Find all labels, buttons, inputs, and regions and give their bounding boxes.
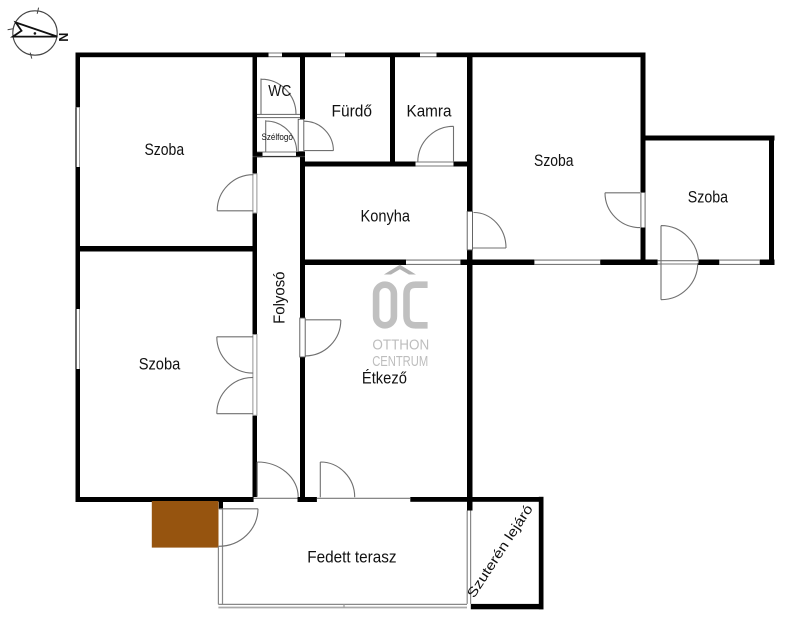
svg-text:Konyha: Konyha xyxy=(361,208,411,226)
svg-text:Szélfogó: Szélfogó xyxy=(261,132,293,143)
svg-text:Folyosó: Folyosó xyxy=(272,271,289,323)
svg-text:Fürdő: Fürdő xyxy=(332,103,373,121)
svg-text:Szoba: Szoba xyxy=(144,141,184,159)
svg-text:Szoba: Szoba xyxy=(534,152,574,170)
svg-text:CENTRUM: CENTRUM xyxy=(372,353,428,370)
svg-text:Kamra: Kamra xyxy=(407,103,453,121)
svg-text:Szoba: Szoba xyxy=(139,356,181,374)
svg-text:WC: WC xyxy=(268,83,291,100)
svg-text:Fedett terasz: Fedett terasz xyxy=(307,548,396,567)
svg-text:OTTHON: OTTHON xyxy=(372,337,429,354)
svg-text:Étkező: Étkező xyxy=(362,369,407,388)
svg-text:Szoba: Szoba xyxy=(688,188,729,206)
svg-text:N: N xyxy=(56,33,70,42)
